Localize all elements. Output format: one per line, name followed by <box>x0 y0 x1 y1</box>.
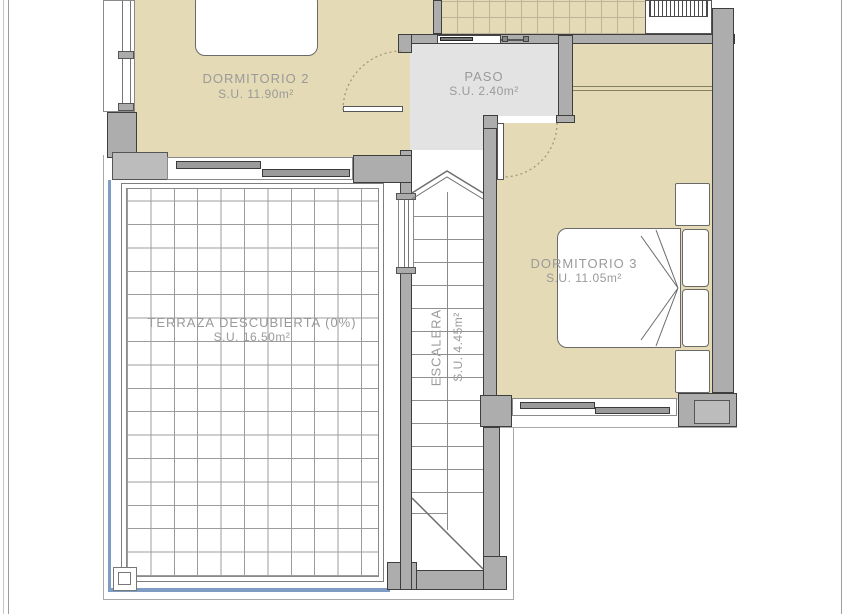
floor-plan: DORMITORIO 2 S.U. 11.90m² PASO S.U. 2.40… <box>0 0 850 614</box>
dorm2-window-panel-left <box>176 161 261 169</box>
terrace-tile-grid <box>121 183 384 582</box>
page-border-right <box>841 0 842 614</box>
bathroom-tile-floor <box>441 0 650 34</box>
dorm3-bed-pillow-bottom <box>682 289 709 347</box>
wall-right-exterior <box>712 8 734 393</box>
sliding-door-rail-nub2 <box>523 36 529 42</box>
room-label-dormitorio2: DORMITORIO 2 <box>156 71 356 86</box>
wall-paso-dorm3-divider-cap <box>556 115 575 123</box>
dorm3-nightstand-bottom <box>675 350 710 393</box>
room-area-dormitorio2: S.U. 11.90m² <box>156 87 356 101</box>
dorm2-bottom-window <box>167 157 353 180</box>
dorm2-door-leaf <box>343 106 403 112</box>
radiator-icon <box>649 0 708 17</box>
dorm3-nightstand-top <box>675 183 710 226</box>
footprint-outline-left <box>103 155 104 600</box>
wall-stairs-right-lower <box>483 427 500 573</box>
dormitorio3-floor-upper <box>573 40 712 123</box>
room-area-escalera: S.U. 4.45m² <box>451 277 465 417</box>
wall-dorm2-pillar-lower <box>112 152 168 180</box>
wall-door-stub-top <box>398 34 412 53</box>
sliding-door-rail-nub1 <box>502 36 508 42</box>
stairwell-window-cap-top <box>396 193 416 200</box>
wall-dorm2-bath-divider <box>433 0 442 34</box>
dorm2-left-window-mullion <box>118 51 134 59</box>
dormitorio3-wardrobe-line <box>573 86 712 91</box>
terrace-blue-edge-bottom <box>108 588 390 592</box>
footprint-outline-bottom <box>103 599 514 600</box>
room-label-escalera: ESCALERA <box>429 278 444 418</box>
wall-dorm3-bottom-right-inner <box>694 400 730 424</box>
wall-stairs-right-block <box>480 395 512 427</box>
wall-stairs-bottom-right-block <box>483 556 507 590</box>
dorm2-window-panel-right <box>262 169 350 177</box>
stairwell-window-glass <box>404 199 405 271</box>
page-border-left-outer <box>3 0 4 614</box>
room-area-dormitorio3: S.U. 11.05m² <box>484 271 684 285</box>
footprint-outline-right <box>513 427 514 600</box>
stairwell-window <box>398 196 414 274</box>
terrace-drain <box>113 567 137 591</box>
page-border-left-inner <box>8 0 9 614</box>
footprint-outline-top-right <box>490 427 737 428</box>
room-label-dormitorio3: DORMITORIO 3 <box>484 256 684 271</box>
room-label-terraza: TERRAZA DESCUBIERTA (0%) <box>122 315 382 330</box>
wall-dorm2-window-end-block <box>353 155 412 183</box>
dorm3-bed-mattress <box>557 228 681 348</box>
dorm3-window-panel-left <box>520 402 595 409</box>
dorm3-bottom-window <box>512 398 677 416</box>
terrace-tile-grid-inner <box>126 188 379 577</box>
room-label-paso: PASO <box>404 69 564 84</box>
dorm3-window-panel-right <box>595 407 670 414</box>
sliding-door-leaf <box>440 37 473 41</box>
wall-paso-bottom-stub <box>483 115 498 129</box>
dorm2-bed <box>195 0 318 56</box>
terrace-blue-edge-left <box>108 180 111 592</box>
room-area-terraza: S.U. 16.50m² <box>122 330 382 344</box>
dorm2-left-window-sill <box>118 103 134 111</box>
stair-tread-partial <box>412 513 448 514</box>
dorm3-bed-pillow-top <box>682 229 709 287</box>
terrace-drain-inner <box>118 572 131 585</box>
stair-center-line <box>447 192 448 530</box>
dorm3-door-leaf <box>497 123 504 180</box>
dorm2-left-window <box>103 0 135 112</box>
sliding-door <box>437 35 501 44</box>
stairwell-window-cap-bottom <box>396 267 416 274</box>
room-area-paso: S.U. 2.40m² <box>404 84 564 98</box>
stairwell-window-glass2 <box>408 199 409 271</box>
